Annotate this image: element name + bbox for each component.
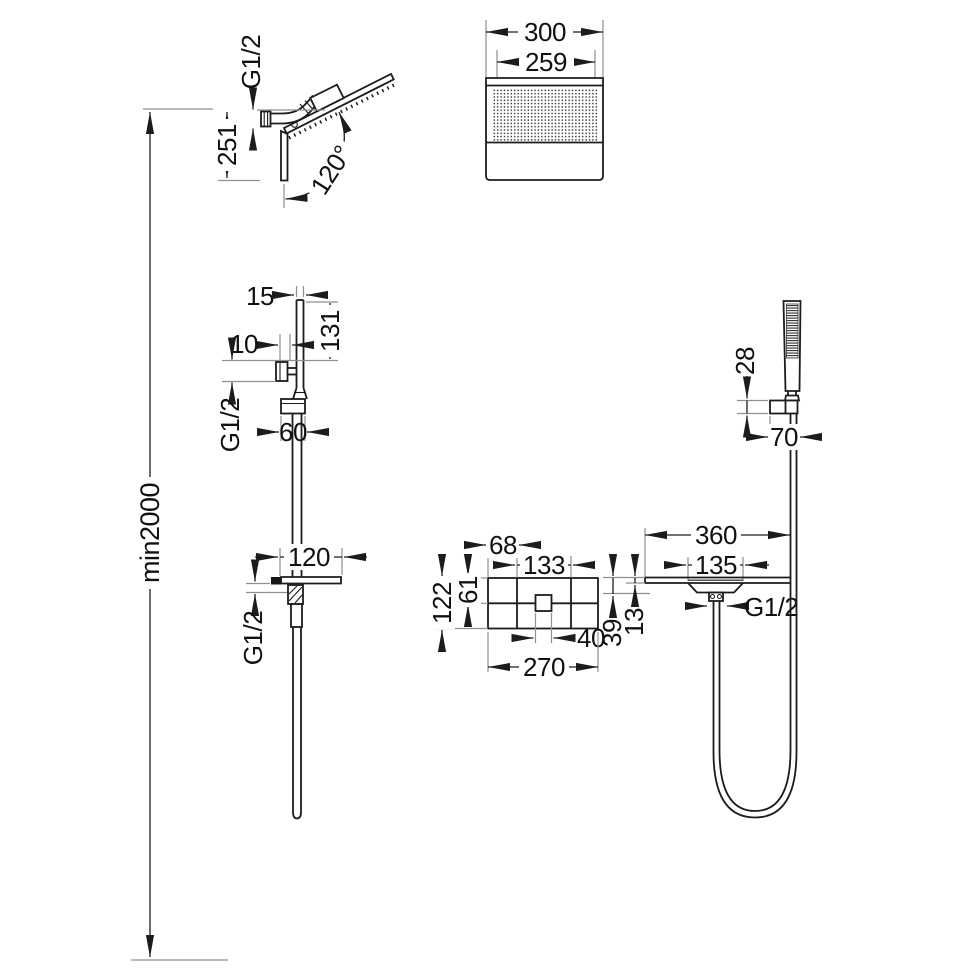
pipe-taper	[293, 388, 297, 399]
technical-drawing-page: min2000 G1/2 251	[0, 0, 970, 970]
plate-center-height-label: 61	[453, 576, 483, 604]
spout-wall-anchor	[271, 577, 281, 585]
mixer-plate-front-view: 68 133 122 61	[427, 530, 605, 682]
spout-side-view: 120 G1/2	[238, 542, 367, 819]
riser-detail-view: 15 131 10 G1/2	[215, 281, 345, 577]
shower-system-dimension-drawing: min2000 G1/2 251	[0, 0, 970, 970]
shelf-width-label: 360	[695, 520, 737, 550]
holder-width-label: 70	[770, 422, 798, 452]
spout-lower-bracket	[291, 604, 302, 627]
head-width-label: 300	[524, 17, 566, 47]
side-hose-bottom	[293, 812, 301, 819]
shelf-thickness-label: 13	[619, 608, 649, 636]
hand-shower-holder	[770, 401, 798, 414]
plate-width-label: 270	[523, 652, 565, 682]
riser-top-to-inlet-label: 131	[315, 310, 345, 352]
wall-plate	[281, 131, 288, 181]
recess-funnel	[688, 583, 743, 593]
face-width-label: 259	[525, 47, 567, 77]
shower-head-side-view: G1/2 251 120°	[212, 35, 395, 208]
supply-nipple	[261, 112, 271, 127]
spray-nozzle-ticks	[289, 85, 395, 139]
spout-length-label: 120	[288, 542, 330, 572]
spout-blade	[281, 577, 341, 584]
min-install-height-label: min2000	[135, 483, 165, 583]
plate-left-offset-label: 68	[489, 530, 517, 560]
spray-face-nozzle-grid	[492, 88, 598, 141]
handle-cutout	[536, 595, 552, 611]
spout-thread-label: G1/2	[238, 611, 268, 665]
shower-head-front-view: 300 259	[486, 17, 603, 180]
hose-connector	[709, 593, 723, 602]
hand-shower-spray-head	[787, 304, 799, 358]
union-connector	[281, 399, 305, 414]
shelf-side-view: 360 135 G1/2 39 13	[597, 414, 798, 818]
riser-thread-label: G1/2	[215, 398, 245, 452]
riser-pipe-width-label: 15	[246, 281, 274, 311]
plate-center-width-label: 133	[523, 550, 565, 580]
overall-height-dimension: min2000	[131, 109, 228, 960]
hand-shower-view: 28 70	[730, 301, 822, 452]
holder-height-label: 28	[730, 347, 760, 375]
head-height-label: 251	[212, 124, 242, 166]
pipe-taper	[304, 388, 308, 399]
shelf-recess-width-label: 135	[695, 550, 737, 580]
riser-inlet-offset-label: 10	[230, 329, 258, 359]
wall-inlet-fitting	[276, 362, 288, 381]
head-thread-label: G1/2	[236, 35, 266, 89]
